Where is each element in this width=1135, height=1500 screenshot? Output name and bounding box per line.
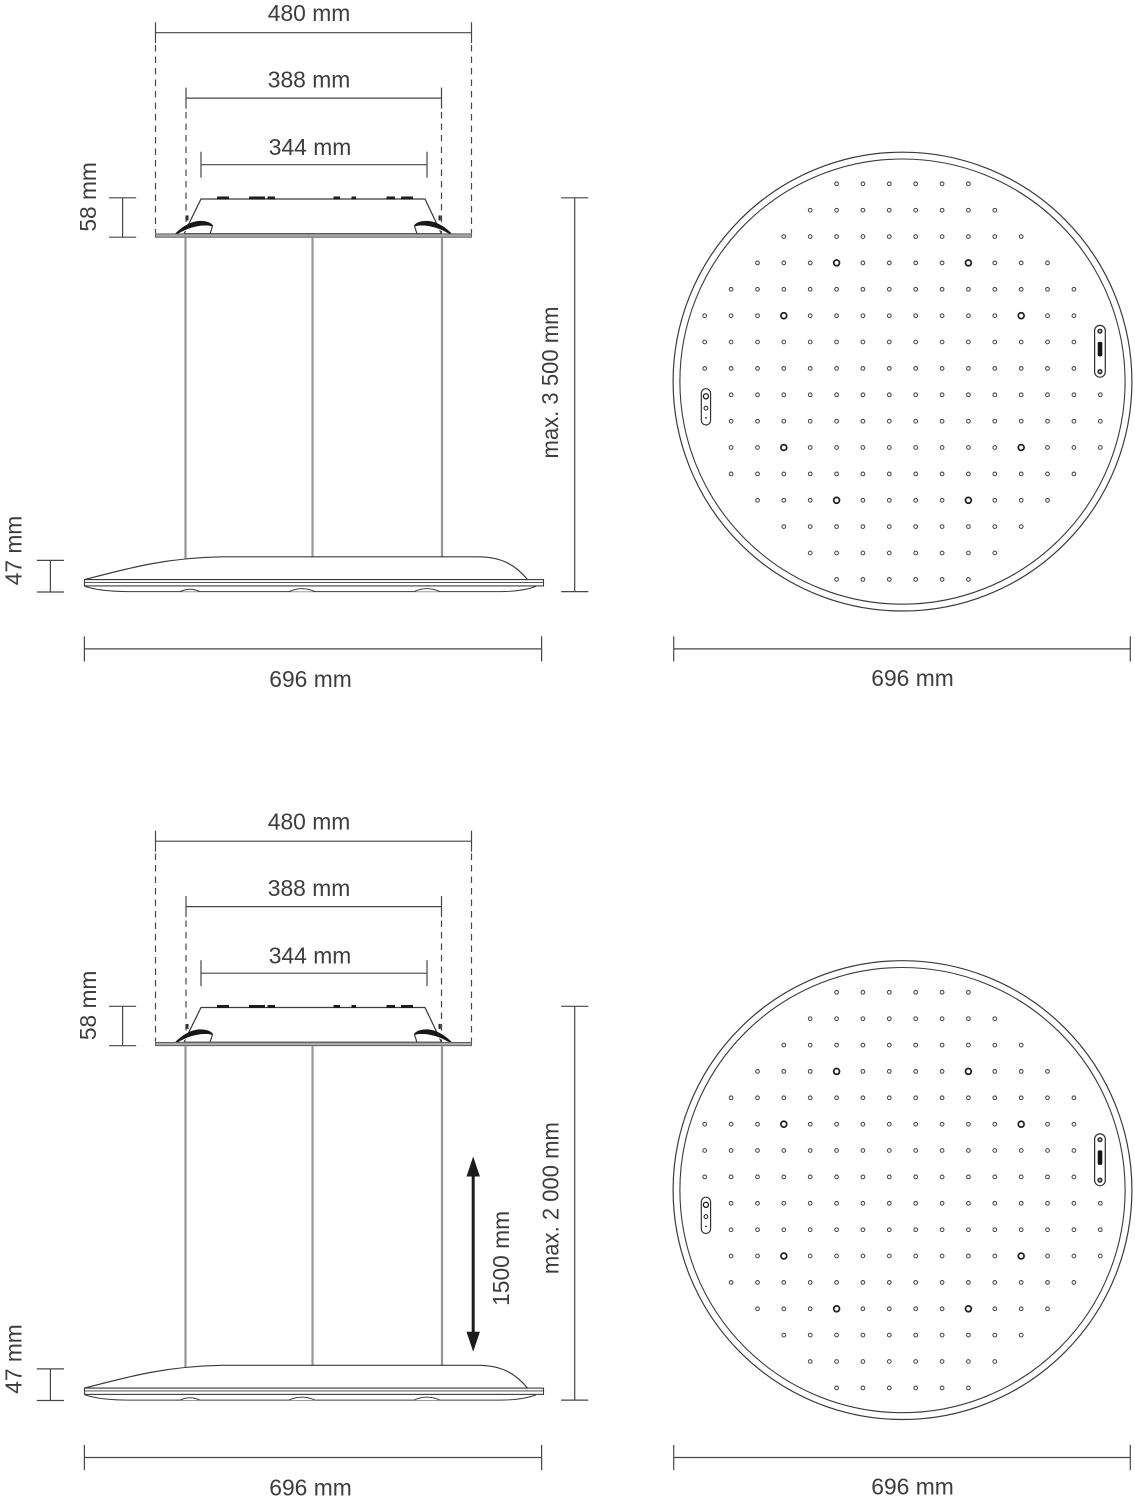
svg-text:344 mm: 344 mm	[269, 943, 352, 969]
svg-text:47 mm: 47 mm	[1, 1324, 27, 1394]
svg-text:max. 2 000 mm: max. 2 000 mm	[538, 1122, 564, 1274]
svg-text:1500 mm: 1500 mm	[488, 1211, 514, 1306]
svg-text:480 mm: 480 mm	[268, 808, 351, 834]
svg-text:58 mm: 58 mm	[75, 162, 101, 232]
svg-text:388 mm: 388 mm	[268, 66, 351, 92]
svg-text:388 mm: 388 mm	[268, 875, 351, 901]
svg-text:max. 3 500 mm: max. 3 500 mm	[537, 307, 563, 459]
svg-text:344 mm: 344 mm	[269, 134, 352, 160]
svg-text:58 mm: 58 mm	[75, 971, 101, 1041]
svg-text:696 mm: 696 mm	[871, 1474, 954, 1500]
svg-text:696 mm: 696 mm	[269, 1475, 352, 1500]
svg-text:47 mm: 47 mm	[1, 516, 27, 586]
svg-text:696 mm: 696 mm	[871, 665, 954, 691]
svg-text:696 mm: 696 mm	[269, 666, 352, 692]
svg-text:480 mm: 480 mm	[268, 0, 351, 26]
